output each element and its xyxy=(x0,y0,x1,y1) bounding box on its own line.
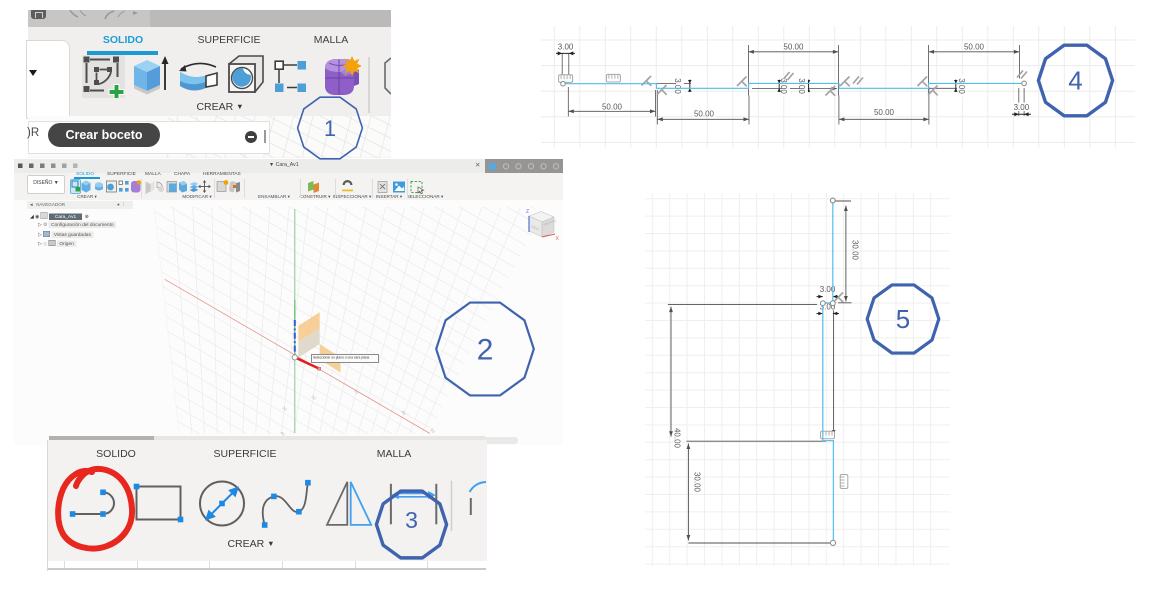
svg-text:3.00: 3.00 xyxy=(1014,103,1030,112)
svg-text:30: 30 xyxy=(281,405,288,412)
svg-text:50.00: 50.00 xyxy=(874,108,895,117)
svg-text:X: X xyxy=(556,236,560,242)
svg-text:3.00: 3.00 xyxy=(797,78,806,94)
svg-text:3.00: 3.00 xyxy=(779,78,788,94)
svg-text:40: 40 xyxy=(400,409,407,416)
svg-text:Z: Z xyxy=(526,209,529,215)
svg-text:5: 5 xyxy=(896,306,910,334)
svg-text:4: 4 xyxy=(1068,66,1083,96)
svg-text:3.00: 3.00 xyxy=(957,78,966,94)
svg-text:3.00: 3.00 xyxy=(558,43,574,52)
svg-text:3.00: 3.00 xyxy=(673,78,682,94)
svg-text:50.00: 50.00 xyxy=(964,42,985,51)
svg-text:50: 50 xyxy=(429,427,436,434)
svg-text:50.00: 50.00 xyxy=(783,42,804,51)
svg-text:20: 20 xyxy=(353,388,360,395)
svg-text:50.00: 50.00 xyxy=(602,102,623,111)
svg-text:1: 1 xyxy=(324,116,336,141)
svg-text:30.00: 30.00 xyxy=(693,472,702,493)
svg-text:3: 3 xyxy=(405,507,418,533)
svg-text:2: 2 xyxy=(477,333,494,366)
svg-text:50.00: 50.00 xyxy=(694,109,715,118)
svg-text:30: 30 xyxy=(310,394,317,401)
svg-text:30.00: 30.00 xyxy=(851,240,860,261)
svg-text:40.00: 40.00 xyxy=(673,428,682,449)
